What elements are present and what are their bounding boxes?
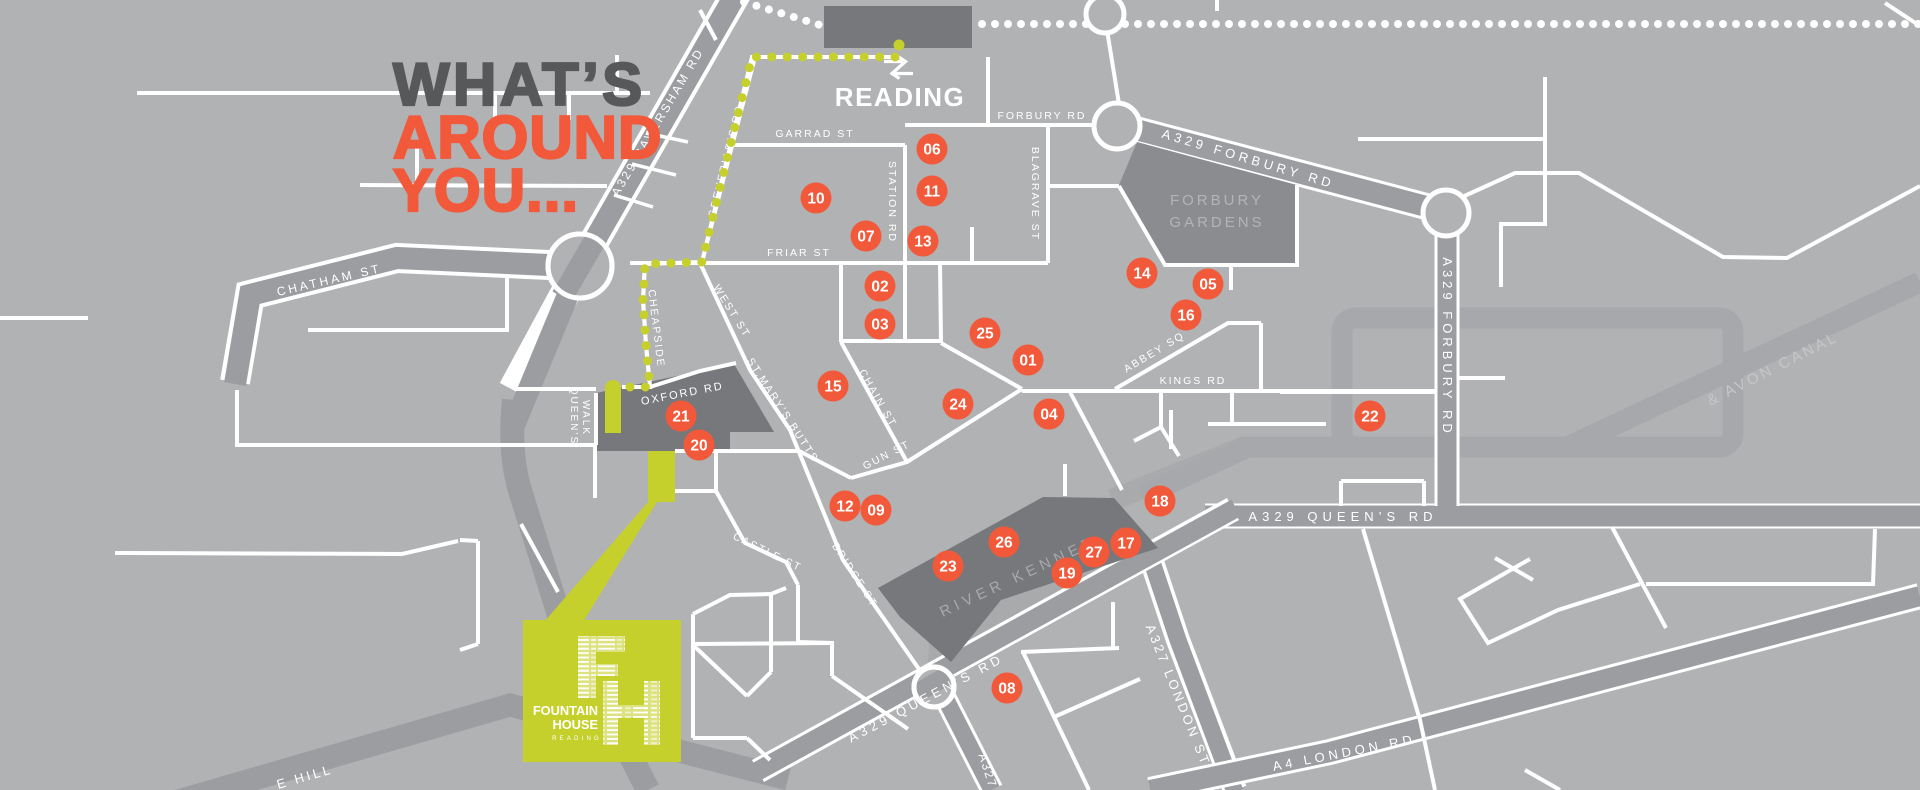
svg-text:STATION RD: STATION RD <box>886 161 898 243</box>
svg-text:05: 05 <box>1199 277 1217 294</box>
svg-text:12: 12 <box>836 499 853 516</box>
svg-text:17: 17 <box>1117 536 1134 553</box>
svg-text:07: 07 <box>857 229 874 246</box>
svg-text:16: 16 <box>1177 308 1195 325</box>
svg-text:READING: READING <box>835 82 965 112</box>
svg-text:KINGS RD: KINGS RD <box>1160 375 1227 387</box>
svg-text:25: 25 <box>976 326 994 343</box>
svg-text:GARRAD ST: GARRAD ST <box>775 128 854 140</box>
svg-text:13: 13 <box>914 234 932 251</box>
svg-text:19: 19 <box>1058 566 1076 583</box>
svg-text:08: 08 <box>998 681 1016 698</box>
svg-text:FORBURY: FORBURY <box>1170 192 1264 209</box>
svg-text:09: 09 <box>867 503 885 520</box>
svg-text:03: 03 <box>871 317 889 334</box>
svg-text:YOU...: YOU... <box>393 157 579 224</box>
svg-text:FORBURY RD: FORBURY RD <box>997 110 1086 122</box>
svg-text:A329 FORBURY RD: A329 FORBURY RD <box>1440 257 1455 436</box>
svg-text:FRIAR ST: FRIAR ST <box>767 247 831 259</box>
svg-text:FOUNTAIN: FOUNTAIN <box>533 703 598 718</box>
svg-text:23: 23 <box>939 559 957 576</box>
svg-text:READING: READING <box>552 736 602 742</box>
svg-text:GARDENS: GARDENS <box>1169 214 1264 231</box>
svg-text:A329 QUEEN’S RD: A329 QUEEN’S RD <box>1248 509 1437 524</box>
svg-text:14: 14 <box>1133 266 1151 283</box>
svg-text:QUEEN’S: QUEEN’S <box>568 387 579 445</box>
svg-text:22: 22 <box>1361 409 1378 426</box>
svg-text:01: 01 <box>1019 353 1037 370</box>
svg-text:27: 27 <box>1085 545 1102 562</box>
svg-text:18: 18 <box>1151 494 1169 511</box>
svg-text:11: 11 <box>924 184 941 201</box>
svg-text:10: 10 <box>807 191 824 208</box>
svg-text:20: 20 <box>690 438 707 455</box>
svg-text:BLAGRAVE ST: BLAGRAVE ST <box>1029 147 1041 241</box>
svg-text:04: 04 <box>1040 407 1058 424</box>
svg-text:26: 26 <box>995 535 1013 552</box>
svg-text:21: 21 <box>672 409 690 426</box>
svg-text:HOUSE: HOUSE <box>552 717 598 732</box>
svg-text:02: 02 <box>871 279 888 296</box>
svg-text:WALK: WALK <box>580 400 591 436</box>
svg-text:24: 24 <box>949 397 967 414</box>
svg-text:15: 15 <box>824 379 842 396</box>
svg-text:06: 06 <box>923 142 941 159</box>
